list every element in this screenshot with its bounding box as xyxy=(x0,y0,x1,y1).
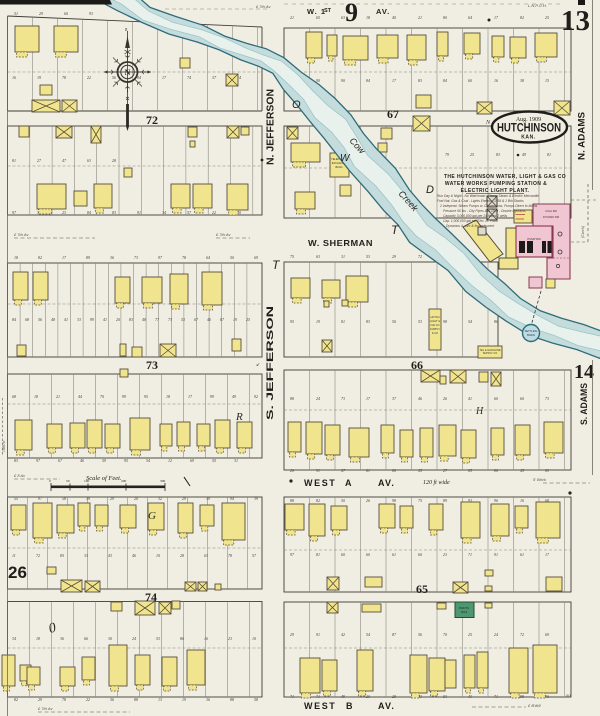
svg-text:BLDG: BLDG xyxy=(335,165,342,169)
svg-text:81: 81 xyxy=(12,158,16,163)
svg-text:67: 67 xyxy=(387,107,399,121)
svg-text:W: W xyxy=(340,153,351,164)
svg-text:82: 82 xyxy=(38,255,42,260)
svg-text:56: 56 xyxy=(112,75,116,80)
svg-text:81: 81 xyxy=(547,152,551,157)
svg-text:25: 25 xyxy=(468,632,472,637)
svg-text:79: 79 xyxy=(445,152,449,157)
svg-text:68: 68 xyxy=(12,394,16,399)
svg-text:HUTCH: HUTCH xyxy=(430,315,439,319)
svg-text:73: 73 xyxy=(545,396,549,401)
svg-text:18: 18 xyxy=(166,394,170,399)
svg-text:OILS: OILS xyxy=(461,610,468,614)
svg-text:DYNAMO RM: DYNAMO RM xyxy=(543,215,559,219)
svg-text:80: 80 xyxy=(392,468,396,473)
svg-text:88: 88 xyxy=(290,498,294,503)
svg-text:81: 81 xyxy=(341,319,345,324)
svg-text:49: 49 xyxy=(232,394,236,399)
svg-text:84: 84 xyxy=(366,78,370,83)
svg-text:82: 82 xyxy=(316,498,320,503)
svg-text:Scale of Feet.: Scale of Feet. xyxy=(86,475,122,482)
svg-text:16: 16 xyxy=(494,78,498,83)
svg-text:Capacity 3,000,000 gal per 24: Capacity 3,000,000 gal per 24 hours 2 we… xyxy=(443,214,507,218)
svg-text:28: 28 xyxy=(392,694,396,699)
svg-text:73: 73 xyxy=(134,255,138,260)
svg-text:73: 73 xyxy=(341,396,345,401)
svg-text:Pressure 60 lbs - City Pipes 4: Pressure 60 lbs - City Pipes 4 to 10 in … xyxy=(443,209,526,213)
svg-text:18: 18 xyxy=(366,15,370,20)
svg-text:KAN.: KAN. xyxy=(521,135,536,141)
svg-text:83: 83 xyxy=(366,319,370,324)
svg-text:70: 70 xyxy=(443,632,447,637)
svg-text:60: 60 xyxy=(520,396,524,401)
svg-text:(Creek): (Creek) xyxy=(580,225,585,238)
svg-text:90: 90 xyxy=(341,78,345,83)
svg-text:82: 82 xyxy=(520,15,524,20)
svg-text:74: 74 xyxy=(187,75,191,80)
svg-text:Fuel Nat. Gas & Coal - Lights: Fuel Nat. Gas & Coal - Lights Electric -… xyxy=(437,199,524,203)
svg-text:£ 7th Av: £ 7th Av xyxy=(215,232,231,237)
svg-text:50: 50 xyxy=(66,479,70,483)
svg-text:39: 39 xyxy=(206,496,210,501)
svg-text:43: 43 xyxy=(108,553,112,558)
svg-text:100: 100 xyxy=(84,479,90,483)
svg-text:13: 13 xyxy=(158,697,162,702)
svg-text:WEST: WEST xyxy=(304,478,336,488)
svg-text:83: 83 xyxy=(496,152,500,157)
svg-text:14: 14 xyxy=(574,361,594,383)
svg-text:69: 69 xyxy=(190,458,194,463)
svg-text:72: 72 xyxy=(418,254,422,259)
svg-text:83: 83 xyxy=(14,458,18,463)
svg-text:23: 23 xyxy=(62,210,66,215)
svg-text:46: 46 xyxy=(132,553,136,558)
svg-text:11: 11 xyxy=(12,553,16,558)
svg-text:91: 91 xyxy=(494,552,498,557)
svg-text:84: 84 xyxy=(87,210,91,215)
svg-text:£ 7th Av: £ 7th Av xyxy=(37,706,53,711)
svg-text:22: 22 xyxy=(87,75,91,80)
svg-text:R: R xyxy=(235,411,243,423)
svg-text:83: 83 xyxy=(112,210,116,215)
svg-text:26: 26 xyxy=(366,498,370,503)
svg-text:60: 60 xyxy=(341,552,345,557)
svg-text:98: 98 xyxy=(443,319,447,324)
svg-text:WATER WORKS PUMPING STATION &: WATER WORKS PUMPING STATION & xyxy=(445,181,547,187)
svg-text:↙: ↙ xyxy=(256,362,260,368)
svg-text:60: 60 xyxy=(366,552,370,557)
svg-text:89: 89 xyxy=(443,498,447,503)
svg-text:SUPPLY CO: SUPPLY CO xyxy=(483,351,498,355)
svg-text:53: 53 xyxy=(443,694,447,699)
svg-text:N: N xyxy=(125,68,131,77)
svg-text:26: 26 xyxy=(8,563,27,582)
svg-text:53: 53 xyxy=(156,636,160,641)
svg-text:81: 81 xyxy=(316,552,320,557)
svg-text:22: 22 xyxy=(86,697,90,702)
svg-text:89: 89 xyxy=(86,255,90,260)
svg-text:S. JEFFERSON: S. JEFFERSON xyxy=(265,306,276,420)
svg-text:95: 95 xyxy=(144,394,148,399)
svg-text:22: 22 xyxy=(212,210,216,215)
svg-text:55: 55 xyxy=(14,496,18,501)
svg-text:& CO: & CO xyxy=(432,331,438,335)
svg-text:50: 50 xyxy=(341,498,345,503)
svg-text:24: 24 xyxy=(494,632,498,637)
svg-text:46: 46 xyxy=(418,396,422,401)
svg-text:19: 19 xyxy=(233,317,237,322)
svg-text:99: 99 xyxy=(90,317,94,322)
svg-text:AV.: AV. xyxy=(378,701,395,711)
svg-text:5' Brick: 5' Brick xyxy=(533,477,547,482)
svg-text:69: 69 xyxy=(545,632,549,637)
svg-text:33: 33 xyxy=(84,553,88,558)
svg-text:91: 91 xyxy=(316,632,320,637)
svg-text:84: 84 xyxy=(443,78,447,83)
svg-text:80: 80 xyxy=(494,468,498,473)
svg-text:PUMP RM: PUMP RM xyxy=(527,237,541,241)
svg-text:71: 71 xyxy=(316,694,320,699)
svg-text:23: 23 xyxy=(228,636,232,641)
svg-text:29: 29 xyxy=(290,632,294,637)
svg-text:21: 21 xyxy=(290,15,294,20)
svg-text:£ 7th Av: £ 7th Av xyxy=(255,4,271,9)
svg-text:58: 58 xyxy=(62,496,66,501)
svg-text:88: 88 xyxy=(290,396,294,401)
svg-text:29: 29 xyxy=(110,496,114,501)
svg-text:60: 60 xyxy=(64,11,68,16)
svg-text:83: 83 xyxy=(418,78,422,83)
svg-text:48: 48 xyxy=(142,317,146,322)
svg-text:21: 21 xyxy=(56,394,60,399)
svg-text:41: 41 xyxy=(103,317,107,322)
svg-text:91: 91 xyxy=(137,210,141,215)
svg-text:0: 0 xyxy=(49,479,51,483)
svg-text:85: 85 xyxy=(60,553,64,558)
svg-text:45: 45 xyxy=(418,468,422,473)
svg-text:34: 34 xyxy=(162,210,166,215)
svg-text:20: 20 xyxy=(116,317,120,322)
svg-text:95: 95 xyxy=(124,458,128,463)
svg-text:60: 60 xyxy=(494,396,498,401)
svg-text:60: 60 xyxy=(468,78,472,83)
svg-text:86: 86 xyxy=(494,319,498,324)
svg-text:65: 65 xyxy=(416,582,428,596)
svg-text:66: 66 xyxy=(84,636,88,641)
svg-text:WEST: WEST xyxy=(304,701,336,711)
svg-text:30: 30 xyxy=(108,636,112,641)
svg-text:31: 31 xyxy=(316,468,320,473)
svg-text:84: 84 xyxy=(12,317,16,322)
svg-text:19: 19 xyxy=(182,697,186,702)
svg-text:61: 61 xyxy=(366,468,370,473)
svg-text:THE HUTCHINSON WATER, LIGHT &: THE HUTCHINSON WATER, LIGHT & GAS CO xyxy=(444,174,566,180)
svg-text:99: 99 xyxy=(210,394,214,399)
svg-text:86: 86 xyxy=(180,636,184,641)
svg-text:49: 49 xyxy=(522,152,526,157)
svg-text:31: 31 xyxy=(234,458,238,463)
svg-text:61: 61 xyxy=(392,552,396,557)
svg-text:74: 74 xyxy=(145,590,157,604)
svg-text:53: 53 xyxy=(366,254,370,259)
svg-text:18: 18 xyxy=(14,255,18,260)
svg-text:92: 92 xyxy=(254,394,258,399)
svg-text:36: 36 xyxy=(60,636,64,641)
svg-text:60': 60' xyxy=(566,693,571,698)
svg-text:COAL RM: COAL RM xyxy=(545,209,557,213)
svg-text:46: 46 xyxy=(207,317,211,322)
svg-text:61: 61 xyxy=(520,552,524,557)
svg-text:50: 50 xyxy=(392,319,396,324)
svg-text:29: 29 xyxy=(392,254,396,259)
svg-text:43: 43 xyxy=(468,694,472,699)
svg-text:AV.: AV. xyxy=(376,7,390,16)
svg-text:78: 78 xyxy=(62,697,66,702)
svg-text:A: A xyxy=(345,478,352,488)
svg-text:65: 65 xyxy=(468,468,472,473)
svg-text:£ 8 Av: £ 8 Av xyxy=(13,473,26,478)
svg-text:24: 24 xyxy=(132,636,136,641)
svg-text:16: 16 xyxy=(204,636,208,641)
svg-text:51: 51 xyxy=(14,11,18,16)
svg-text:28: 28 xyxy=(112,158,116,163)
svg-text:56: 56 xyxy=(418,632,422,637)
svg-text:2 Independ. Steam Pumps w. Con: 2 Independ. Steam Pumps w. Connections, … xyxy=(439,204,538,208)
svg-text:S. ADAMS: S. ADAMS xyxy=(579,383,590,425)
svg-text:120 ft wide: 120 ft wide xyxy=(423,479,450,486)
svg-text:20: 20 xyxy=(290,468,294,473)
svg-text:Dynamos 4 - Arc & Incandescent: Dynamos 4 - Arc & Incandescent xyxy=(446,224,495,228)
svg-text:31: 31 xyxy=(341,254,345,259)
svg-text:D: D xyxy=(426,184,434,196)
svg-text:75: 75 xyxy=(290,254,294,259)
svg-text:71: 71 xyxy=(494,694,498,699)
svg-text:75: 75 xyxy=(418,498,422,503)
svg-text:71: 71 xyxy=(468,552,472,557)
svg-text:49: 49 xyxy=(341,694,345,699)
svg-text:72: 72 xyxy=(36,553,40,558)
svg-text:15: 15 xyxy=(545,78,549,83)
svg-text:66: 66 xyxy=(411,358,423,372)
svg-text:46: 46 xyxy=(80,458,84,463)
svg-text:G: G xyxy=(148,510,156,522)
svg-text:78: 78 xyxy=(182,255,186,260)
svg-text:59: 59 xyxy=(102,458,106,463)
svg-text:71: 71 xyxy=(290,694,294,699)
svg-text:93: 93 xyxy=(89,11,93,16)
svg-text:16: 16 xyxy=(520,498,524,503)
svg-text:38: 38 xyxy=(520,78,524,83)
svg-text:44: 44 xyxy=(78,394,82,399)
svg-text:83: 83 xyxy=(129,317,133,322)
svg-text:96: 96 xyxy=(494,498,498,503)
svg-text:39: 39 xyxy=(254,496,258,501)
svg-text:16: 16 xyxy=(12,75,16,80)
svg-text:10: 10 xyxy=(156,553,160,558)
svg-text:53: 53 xyxy=(418,319,422,324)
svg-text:36: 36 xyxy=(206,697,210,702)
svg-text:LIGHT &: LIGHT & xyxy=(430,319,440,323)
svg-text:53: 53 xyxy=(181,317,185,322)
svg-text:W. SHERMAN: W. SHERMAN xyxy=(308,238,373,248)
svg-text:50: 50 xyxy=(230,255,234,260)
svg-text:N. ADAMS: N. ADAMS xyxy=(577,112,588,160)
svg-text:£ B'dW: £ B'dW xyxy=(527,703,542,708)
svg-text:Cap. 1,000,000 gal ea. Elec. L: Cap. 1,000,000 gal ea. Elec. Lt. Plant xyxy=(443,219,499,223)
svg-text:10th Av: 10th Av xyxy=(2,440,6,452)
svg-text:55: 55 xyxy=(212,458,216,463)
svg-text:60: 60 xyxy=(418,552,422,557)
svg-text:29: 29 xyxy=(39,11,43,16)
svg-text:64: 64 xyxy=(468,15,472,20)
svg-text:21: 21 xyxy=(418,15,422,20)
svg-text:72: 72 xyxy=(146,113,158,127)
svg-text:99: 99 xyxy=(122,394,126,399)
svg-text:56: 56 xyxy=(110,697,114,702)
svg-text:24: 24 xyxy=(316,396,320,401)
svg-text:ICE CO: ICE CO xyxy=(431,323,440,327)
svg-text:25: 25 xyxy=(545,15,549,20)
svg-text:78: 78 xyxy=(62,75,66,80)
svg-text:18: 18 xyxy=(34,394,38,399)
svg-text:88: 88 xyxy=(230,697,234,702)
svg-text:68: 68 xyxy=(25,317,29,322)
svg-text:19: 19 xyxy=(316,319,320,324)
svg-text:18: 18 xyxy=(36,636,40,641)
svg-text:69: 69 xyxy=(254,255,258,260)
svg-text:12: 12 xyxy=(168,458,172,463)
svg-text:20: 20 xyxy=(366,694,370,699)
svg-text:B: B xyxy=(346,701,353,711)
svg-text:54: 54 xyxy=(366,632,370,637)
svg-text:10: 10 xyxy=(252,636,256,641)
svg-text:63: 63 xyxy=(545,468,549,473)
svg-text:63: 63 xyxy=(204,553,208,558)
svg-text:28: 28 xyxy=(180,553,184,558)
svg-text:O: O xyxy=(292,99,301,111)
svg-text:54: 54 xyxy=(146,458,150,463)
svg-text:40: 40 xyxy=(392,15,396,20)
svg-text:63: 63 xyxy=(316,254,320,259)
svg-text:33: 33 xyxy=(77,317,81,322)
svg-text:98: 98 xyxy=(392,498,396,503)
svg-text:58: 58 xyxy=(254,697,258,702)
svg-text:78: 78 xyxy=(228,553,232,558)
svg-text:29: 29 xyxy=(38,697,42,702)
svg-text:19: 19 xyxy=(37,75,41,80)
svg-text:26: 26 xyxy=(443,396,447,401)
svg-text:29: 29 xyxy=(182,496,186,501)
svg-text:BASIN: BASIN xyxy=(527,333,535,337)
svg-text:41: 41 xyxy=(64,317,68,322)
svg-text:64: 64 xyxy=(206,255,210,260)
svg-text:25: 25 xyxy=(470,152,474,157)
svg-text:32: 32 xyxy=(158,496,162,501)
svg-text:AV.: AV. xyxy=(378,478,395,488)
svg-text:95: 95 xyxy=(290,319,294,324)
svg-text:54: 54 xyxy=(468,319,472,324)
svg-text:£ 7th Av: £ 7th Av xyxy=(13,232,29,237)
svg-text:82: 82 xyxy=(14,697,18,702)
svg-text:N. JEFFERSON: N. JEFFERSON xyxy=(265,89,277,165)
svg-text:88: 88 xyxy=(134,697,138,702)
svg-text:Run Day & Night - No Watchman: Run Day & Night - No Watchman - Power St… xyxy=(437,194,539,198)
svg-text:L.N.P.O.H.: L.N.P.O.H. xyxy=(528,3,547,8)
svg-text:39: 39 xyxy=(86,496,90,501)
svg-text:80: 80 xyxy=(443,15,447,20)
svg-text:SETTLING: SETTLING xyxy=(525,329,538,333)
svg-text:98: 98 xyxy=(520,694,524,699)
svg-text:SUPPLY: SUPPLY xyxy=(430,327,440,331)
svg-text:72: 72 xyxy=(520,632,524,637)
svg-text:42: 42 xyxy=(341,632,345,637)
svg-text:H: H xyxy=(475,406,484,417)
svg-text:20: 20 xyxy=(134,496,138,501)
svg-text:56: 56 xyxy=(38,317,42,322)
svg-text:300: 300 xyxy=(160,479,166,483)
svg-text:70: 70 xyxy=(100,394,104,399)
svg-text:41: 41 xyxy=(468,396,472,401)
svg-text:200: 200 xyxy=(121,479,127,483)
svg-text:13: 13 xyxy=(561,5,590,37)
svg-text:45: 45 xyxy=(520,468,524,473)
svg-text:HUTCHINSON: HUTCHINSON xyxy=(497,121,561,135)
svg-text:73: 73 xyxy=(168,317,172,322)
svg-text:34: 34 xyxy=(12,636,16,641)
svg-text:94: 94 xyxy=(230,496,234,501)
svg-text:23: 23 xyxy=(443,552,447,557)
svg-text:36: 36 xyxy=(110,255,114,260)
svg-text:63: 63 xyxy=(87,158,91,163)
svg-text:73: 73 xyxy=(146,358,158,372)
svg-text:25: 25 xyxy=(246,317,250,322)
svg-text:9: 9 xyxy=(345,0,358,27)
svg-text:48: 48 xyxy=(51,317,55,322)
svg-text:ST: ST xyxy=(324,8,332,14)
